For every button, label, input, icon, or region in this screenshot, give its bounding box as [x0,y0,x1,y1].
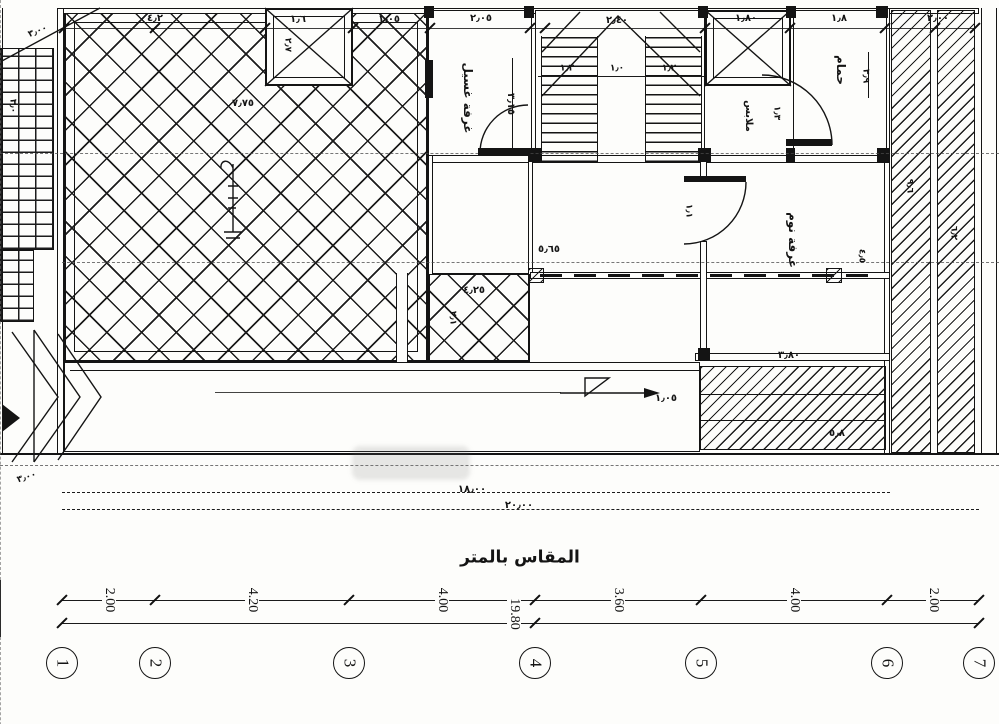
grid-bubble-label-7: 7 [969,659,989,668]
grid-span-3.60: 3.60 [611,586,625,615]
plan-dim-tick-1 [149,22,160,33]
grid-bubble-4: 4 [519,647,551,679]
grid-tick2-7 [973,617,984,628]
grid-bubble-label-3: 3 [339,659,359,668]
plan-dim-tick-8 [784,22,795,33]
grid-tick-7 [973,594,984,605]
grid-bubble-7: 7 [963,647,995,679]
grid-line-solid-1 [0,580,1,637]
grid-bubble-5: 5 [685,647,717,679]
floorplan-canvas: ٤٫٢١٫٦٢٫٧١٫٠٥٢٫٠٥٢٫٤٠١٫٨٠١٫٨٢٫٠٠٧٫٧٥٣٫١٥… [0,0,999,724]
grid-bubble-label-4: 4 [525,659,545,668]
grid-span-4.00: 4.00 [435,586,449,615]
plan-dim-tick-4 [424,22,435,33]
plan-dim-tick-5 [524,22,535,33]
grid-span-2.00: 2.00 [102,586,116,615]
grid-tick-1 [56,594,67,605]
grid-line-dashed-2 [0,637,1,724]
grid-bubble-label-2: 2 [145,659,165,668]
plan-dim-tick-0 [58,22,69,33]
grid-tick2-4 [529,617,540,628]
grid-bubble-2: 2 [139,647,171,679]
plan-dim-tick-7 [699,22,710,33]
grid-span-4.20: 4.20 [245,586,259,615]
grid-layer: 2.004.204.003.604.002.0019.801234567 [0,0,999,724]
plan-dim-tick-10 [929,22,940,33]
grid-bubble-6: 6 [871,647,903,679]
plan-dim-tick-3 [347,22,358,33]
grid-tick-5 [695,594,706,605]
grid-tick-6 [881,594,892,605]
grid-tick-2 [149,594,160,605]
grid-bubble-1: 1 [46,647,78,679]
grid-total-19.80: 19.80 [507,596,521,632]
plan-dim-tick-6 [539,22,550,33]
grid-tick-3 [343,594,354,605]
plan-dim-tick-11 [969,22,980,33]
grid-bubble-3: 3 [333,647,365,679]
grid-tick-4 [529,594,540,605]
grid-span-4.00: 4.00 [787,586,801,615]
grid-bubble-label-1: 1 [52,659,72,668]
grid-tick2-1 [56,617,67,628]
plan-dim-tick-2 [259,22,270,33]
grid-bubble-label-6: 6 [877,659,897,668]
plan-dim-tick-9 [879,22,890,33]
grid-bubble-label-5: 5 [691,659,711,668]
grid-span-2.00: 2.00 [926,586,940,615]
grid-line-dashed-1 [0,0,1,580]
